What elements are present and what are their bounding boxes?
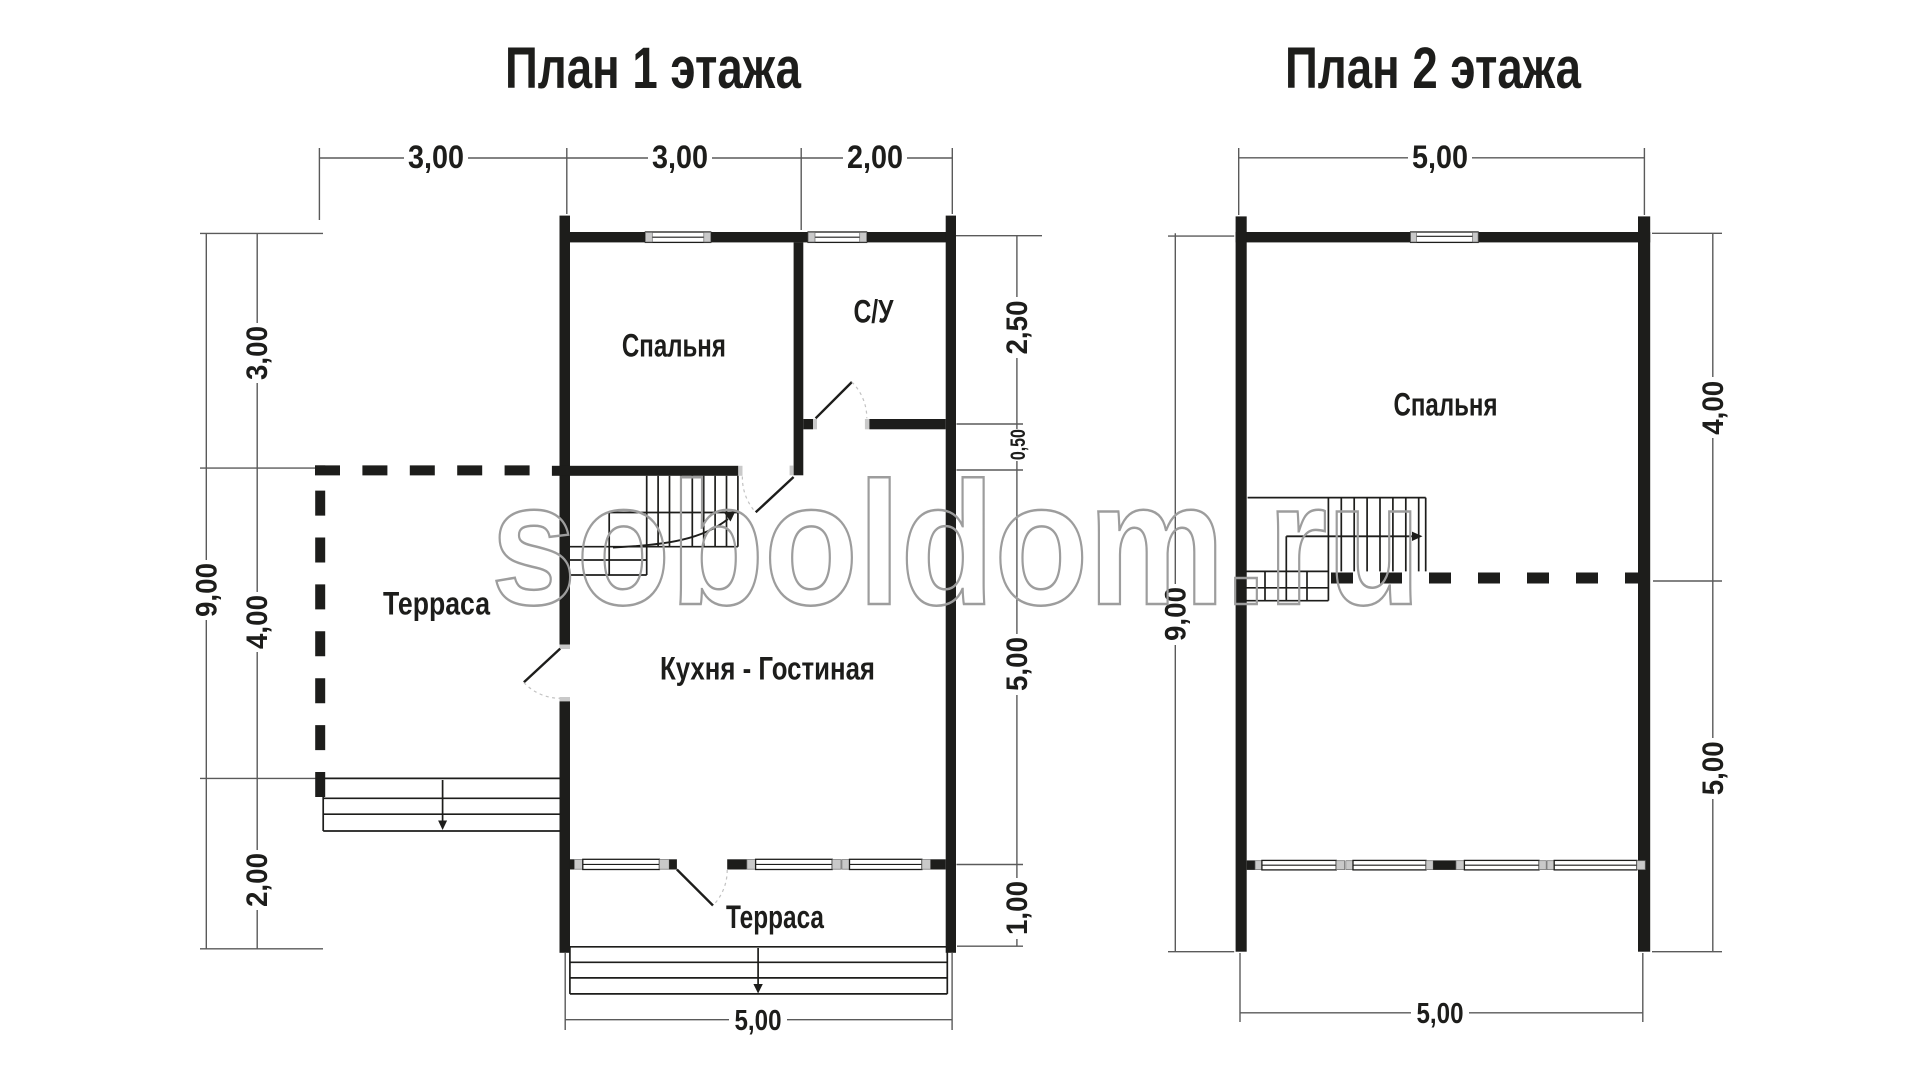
svg-text:Кухня - Гостиная: Кухня - Гостиная: [660, 651, 875, 687]
svg-text:4,00: 4,00: [241, 595, 274, 649]
svg-text:soboldom.ru: soboldom.ru: [491, 447, 1421, 642]
svg-text:Спальня: Спальня: [1394, 387, 1498, 423]
svg-text:С/У: С/У: [854, 294, 895, 330]
svg-text:Терраса: Терраса: [726, 899, 825, 935]
svg-text:5,00: 5,00: [1417, 998, 1464, 1030]
svg-text:Терраса: Терраса: [383, 586, 491, 622]
svg-text:3,00: 3,00: [408, 139, 464, 175]
svg-text:3,00: 3,00: [652, 139, 708, 175]
svg-text:Спальня: Спальня: [622, 328, 726, 364]
svg-text:9,00: 9,00: [190, 563, 223, 617]
svg-text:5,00: 5,00: [1001, 637, 1034, 691]
svg-text:2,00: 2,00: [241, 853, 274, 907]
svg-text:3,00: 3,00: [241, 326, 274, 380]
svg-text:4,00: 4,00: [1697, 381, 1730, 435]
svg-text:План 2 этажа: План 2 этажа: [1285, 36, 1582, 101]
svg-text:5,00: 5,00: [1412, 139, 1468, 175]
svg-text:5,00: 5,00: [1697, 741, 1730, 795]
svg-text:План 1 этажа: План 1 этажа: [505, 36, 802, 101]
svg-text:1,00: 1,00: [1001, 881, 1034, 935]
svg-text:2,50: 2,50: [1001, 301, 1034, 355]
svg-text:2,00: 2,00: [847, 139, 903, 175]
svg-text:5,00: 5,00: [735, 1005, 782, 1037]
